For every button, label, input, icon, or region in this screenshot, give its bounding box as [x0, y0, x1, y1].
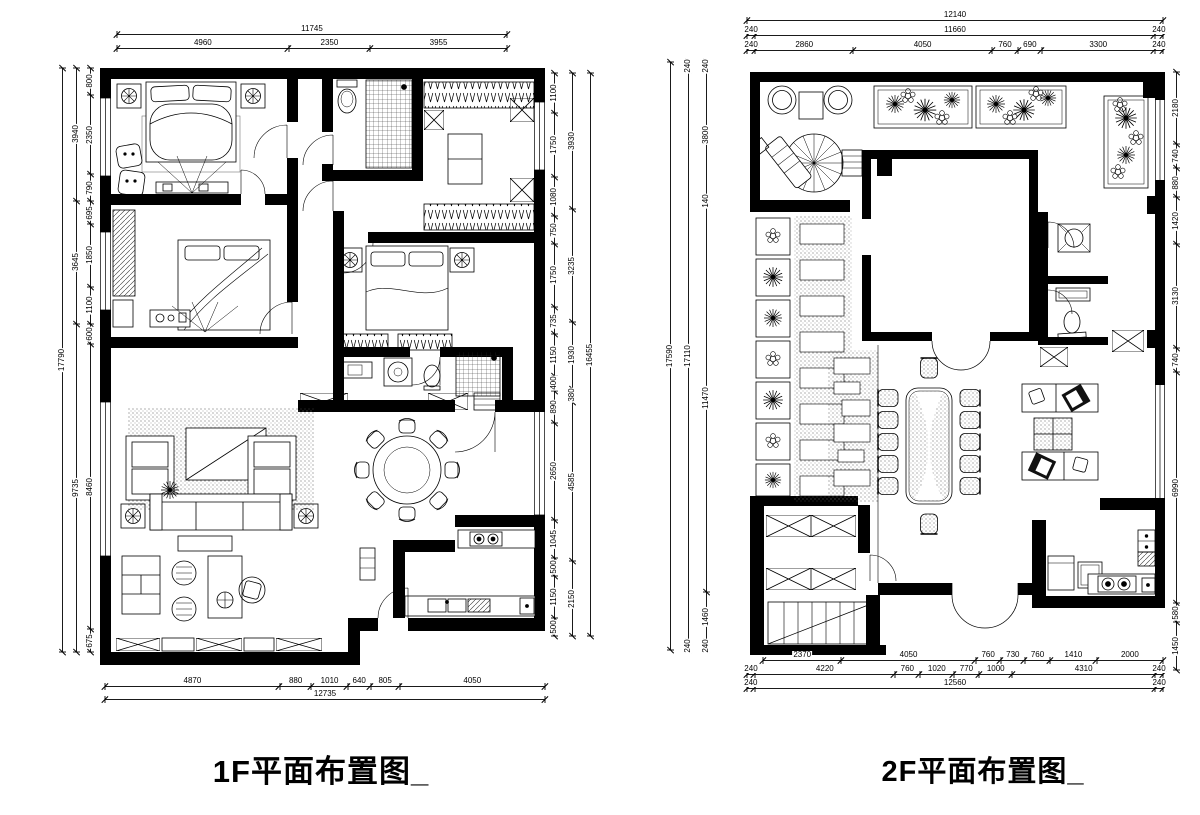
f2-dim-bottom-overall: 24012560240 — [747, 678, 1163, 690]
f1-dim-right-mid: 39303235193038045852150 — [566, 73, 578, 636]
f2-terrace — [752, 86, 862, 194]
f1-dim-bottom-overall: 12735 — [105, 689, 545, 701]
f2-family-room — [878, 358, 1098, 534]
f2-kitchen — [1048, 530, 1155, 594]
f2-dim-left-outer: 17590 — [664, 62, 676, 650]
f1-dim-top-segments: 496023503955 — [117, 38, 507, 50]
f1-dim-right-outer: 16455 — [584, 73, 596, 636]
f2-dim-bottom-segments: 2370405076073076014102000 — [763, 650, 1163, 662]
f2-dim-top-mid: 24011660240 — [747, 25, 1163, 37]
f2-dim-top-segments: 240286040507606903300240 — [747, 40, 1163, 52]
f1-dim-left-mid: 394036459735 — [70, 68, 82, 652]
f1-dim-bottom-segments: 487088010106408054050 — [105, 676, 545, 688]
f1-bathroom-mid — [340, 352, 500, 396]
f2-void-doors — [932, 341, 990, 370]
f1-dim-top-overall: 11745 — [117, 24, 507, 36]
f2-garden-path — [756, 216, 878, 502]
f1-master-bedroom — [115, 82, 287, 197]
f2-dim-right: 21807408801420313074069905801450 — [1170, 72, 1182, 670]
f2-dim-left-inner: 2403800140114701460240 — [700, 62, 712, 650]
f1-living-room — [116, 408, 322, 651]
f1-bedroom3 — [113, 210, 292, 334]
f2-bathrooms — [1040, 222, 1144, 367]
f2-dim-top-overall: 12140 — [747, 10, 1163, 22]
f1-dim-left-outer: 17790 — [56, 68, 68, 652]
f2-dim-bottom-mid: 2404220760102077010004310240 — [747, 664, 1163, 676]
f1-dim-right-inner: 1100175010807501750735115040089026501045… — [548, 73, 560, 636]
f2-main-doors — [952, 583, 1018, 628]
f1-dim-left-inner: 8002350790695185011006008460675 — [84, 68, 96, 652]
f2-plan-title: 2F平面布置图_ — [882, 748, 1085, 790]
f2-windows — [878, 100, 1165, 583]
f2-planters — [874, 86, 1148, 188]
f1-plan-title: 1F平面布置图_ — [213, 746, 429, 791]
f1-bathroom-top — [303, 80, 412, 168]
f2-dim-left-mid: 24017110240 — [682, 62, 694, 650]
f1-dining-room — [355, 419, 460, 522]
